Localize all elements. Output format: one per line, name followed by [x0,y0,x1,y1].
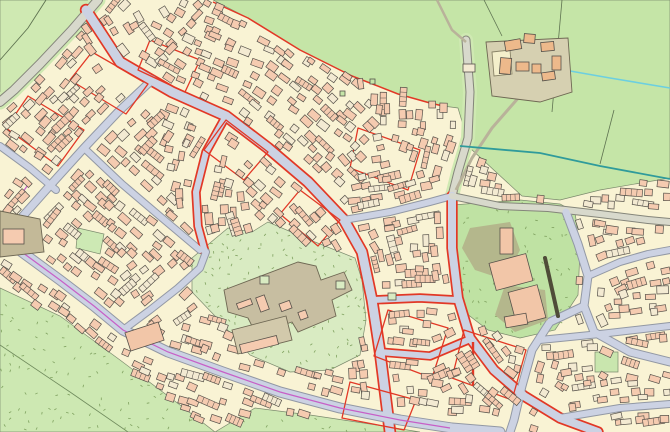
house [611,377,622,384]
house [349,368,357,379]
house [619,305,629,313]
grass-mark [68,373,69,376]
house [602,195,609,203]
house [569,403,576,411]
house [398,121,406,128]
farm-barn [542,71,556,81]
house [610,389,619,396]
house [440,103,448,112]
map-svg [0,0,670,432]
house [382,282,390,289]
school-outbuilding-green [260,276,269,284]
house [308,383,316,391]
house [370,94,377,106]
house [241,202,250,210]
house [413,250,421,257]
house [164,145,173,153]
house [479,405,490,413]
house [450,121,455,128]
house [442,274,449,283]
house [537,195,545,203]
house [417,128,425,136]
house [662,278,670,286]
house [214,166,222,173]
grass-mark [190,420,193,421]
map-canvas[interactable] [0,0,670,432]
house [536,374,544,383]
house [508,355,515,363]
farm-barn [532,64,541,73]
house [582,366,593,372]
house [645,189,653,196]
house [184,179,192,186]
house [448,313,457,321]
house [210,224,219,233]
house [620,419,631,425]
house [202,205,208,213]
house [648,203,659,209]
church-hall-wing [500,228,513,254]
house [576,276,583,284]
house [225,189,232,197]
house [583,200,593,208]
house [417,310,424,317]
house [237,192,245,202]
terrace-row [502,194,520,201]
house [587,344,597,351]
house [204,213,213,225]
house [361,345,368,352]
house [650,308,657,316]
house [351,386,360,393]
house [361,391,370,400]
house [357,360,365,369]
house [659,334,667,342]
terrace-row [399,87,407,106]
house [600,379,608,386]
grass-mark [463,274,466,275]
farm-cottage [463,64,475,72]
house [406,111,413,119]
house [436,227,443,239]
field-gate-marker [340,91,345,96]
house [646,261,655,270]
farm-barn [524,34,536,44]
house [542,345,551,351]
house [359,370,367,379]
outbuilding-green [388,293,396,300]
grass-mark [337,307,340,308]
house [429,101,436,108]
house [638,394,647,400]
house [664,389,670,396]
house [393,374,400,382]
house [218,218,225,226]
house [609,312,620,318]
house [181,323,190,332]
terrace-row [620,188,643,197]
road-center-link [372,298,456,300]
house [660,415,669,422]
house [176,198,183,209]
house [583,380,591,386]
house [422,252,429,262]
house [393,337,405,346]
house [381,116,387,125]
house [574,373,583,381]
house [492,408,499,416]
farm-barn [541,41,555,51]
house [628,381,638,387]
house [605,225,618,234]
house [321,388,329,397]
house [357,78,364,89]
house [639,180,647,187]
house [451,406,463,414]
house [465,395,472,404]
house [407,386,414,394]
house [432,270,440,281]
farm-barn [552,56,561,70]
house [663,193,670,201]
house [167,163,175,171]
house [382,176,391,183]
house [632,228,644,235]
house [650,279,661,286]
farm-barn [499,58,511,75]
house [430,246,438,257]
house [597,288,604,297]
house [358,173,367,181]
house [423,320,431,328]
house [384,225,394,232]
house [657,286,669,294]
farm-barn [516,62,529,71]
house [431,379,443,388]
school-outbuilding-green [336,281,345,289]
house [406,359,418,365]
house [608,201,615,209]
house [415,266,423,272]
house [657,180,669,188]
grass-mark [535,220,538,221]
house [402,328,413,334]
house [416,170,425,179]
house [645,294,655,300]
house [418,389,427,396]
house [487,172,497,181]
house [397,397,405,406]
house [391,134,399,142]
house [220,205,228,214]
house [423,235,429,247]
house [434,212,440,224]
house [616,239,624,247]
field-gate-marker [370,79,375,84]
house [373,133,382,141]
house [376,105,383,115]
house [178,151,185,161]
house [426,308,437,315]
hall-building [3,229,24,244]
house [394,237,402,246]
house [286,408,294,416]
house [372,156,382,163]
house [597,396,607,403]
house [620,397,629,403]
house [479,166,488,175]
house [633,292,641,299]
house [655,225,663,233]
grass-mark [99,404,100,407]
house [415,109,423,120]
house [384,104,390,114]
house [614,299,622,305]
house [480,180,490,188]
house [561,368,572,376]
house [399,109,406,119]
